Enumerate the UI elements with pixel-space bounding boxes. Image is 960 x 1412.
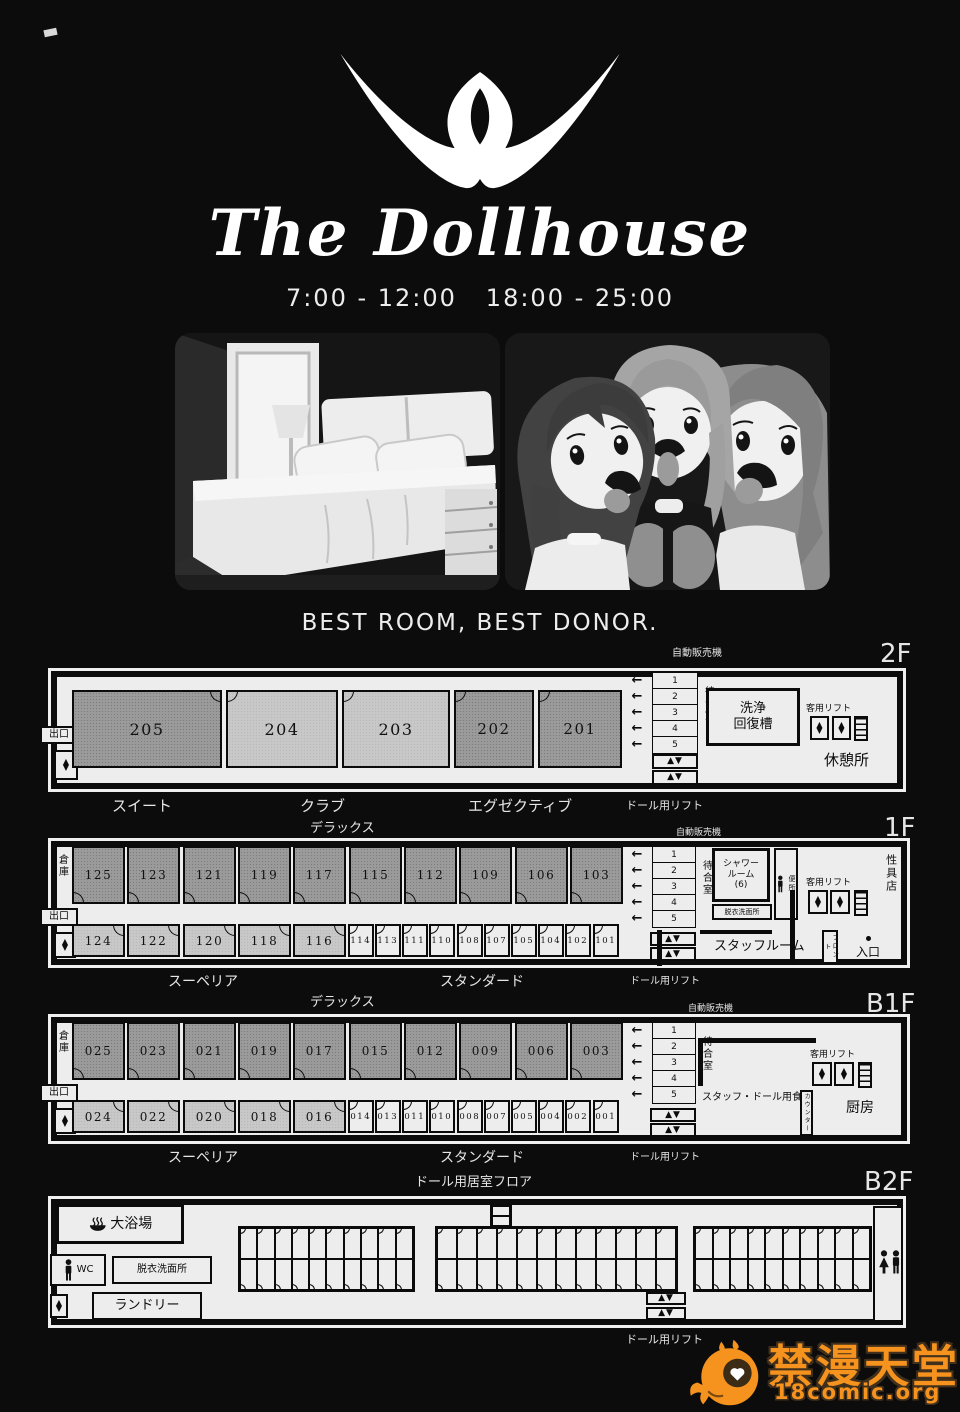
plan-label: 客用リフト	[810, 1050, 855, 1060]
door-arc-icon	[636, 1228, 642, 1234]
plan-label: スタンダード	[440, 1150, 524, 1166]
door-arc-icon	[168, 1101, 179, 1112]
plan-label: スタッフルーム	[714, 940, 805, 955]
plan-room-box: ランドリー	[92, 1292, 202, 1320]
door-arc-icon	[596, 1284, 602, 1290]
door-arc-icon	[835, 1228, 841, 1234]
room-020: 020	[183, 1100, 236, 1133]
room-024: 024	[72, 1100, 125, 1133]
room-012: 012	[404, 1022, 457, 1080]
dollhouse-logo-icon	[325, 52, 635, 197]
doll-cell	[275, 1228, 292, 1259]
room-101: 101	[593, 924, 619, 957]
doll-cell	[437, 1228, 457, 1259]
room-number: 025	[85, 1044, 112, 1058]
floor-plan-b1f: デラックス自動販売機B1F倉庫出口▲▼025023021019017015012…	[0, 988, 960, 1168]
waiting-stall: 3	[652, 1054, 696, 1072]
door-arc-icon	[800, 1228, 806, 1234]
door-arc-icon	[437, 1228, 443, 1234]
waiting-stall: 4	[652, 720, 698, 738]
door-arc-icon	[517, 1228, 523, 1234]
door-arc-icon	[594, 925, 603, 934]
door-arc-icon	[512, 925, 521, 934]
room-number: 018	[251, 1110, 278, 1124]
room-108: 108	[457, 924, 483, 957]
door-arc-icon	[239, 892, 250, 903]
doll-cell	[800, 1228, 818, 1259]
left-arrow-icon: ←	[624, 847, 650, 863]
room-number: 205	[129, 720, 164, 739]
room-203: 203	[342, 690, 450, 768]
elevator-icon: ▲▼	[650, 1123, 696, 1137]
elevator-icon: ▲▼	[50, 1294, 68, 1318]
plan-vertical-label: 倉庫	[56, 854, 68, 878]
door-arc-icon	[378, 1228, 384, 1234]
room-111: 111	[402, 924, 428, 957]
plan-room-box: シャワー ルーム (6)	[712, 848, 770, 902]
door-arc-icon	[695, 1284, 701, 1290]
plan-vertical-label: 性具店	[884, 854, 897, 893]
room-number: 013	[377, 1112, 398, 1122]
elevator-icon: ▲▼	[810, 716, 829, 740]
door-arc-icon	[128, 892, 139, 903]
doll-cell	[800, 1259, 818, 1290]
room-102: 102	[565, 924, 591, 957]
bedroom-photo	[175, 333, 500, 590]
watermark-site: 18comic.org	[774, 1380, 941, 1404]
doll-cell	[730, 1259, 748, 1290]
doll-cell	[361, 1259, 378, 1290]
doll-cell	[748, 1259, 766, 1290]
room-number: 204	[264, 720, 299, 739]
room-number: 103	[583, 868, 610, 882]
room-number: 024	[85, 1110, 112, 1124]
room-124: 124	[72, 924, 125, 957]
room-205: 205	[72, 690, 222, 768]
waiting-stall: 3	[652, 704, 698, 722]
door-arc-icon	[376, 1101, 385, 1110]
doll-cell	[378, 1228, 395, 1259]
room-number: 006	[528, 1044, 555, 1058]
room-121: 121	[183, 846, 236, 904]
door-arc-icon	[556, 1228, 562, 1234]
doll-cell	[292, 1228, 309, 1259]
waiting-stall: 2	[652, 1038, 696, 1056]
door-arc-icon	[224, 1101, 235, 1112]
doll-cell	[497, 1228, 517, 1259]
door-arc-icon	[566, 925, 575, 934]
door-arc-icon	[275, 1284, 281, 1290]
plan-label: 入口	[856, 946, 880, 960]
room-202: 202	[454, 690, 534, 768]
waiting-stall: 1	[652, 1022, 696, 1040]
floor-plan-b2f: ドール用居室フロアB2F大浴場WC脱衣洗面所ランドリー▲▼▲▼▲▼ドール用リフト	[0, 1168, 960, 1354]
waiting-stall: 1	[652, 846, 696, 864]
room-016: 016	[293, 1100, 346, 1133]
plan-room-box: カウンター	[800, 1090, 813, 1136]
door-arc-icon	[477, 1284, 483, 1290]
doll-cell	[783, 1228, 801, 1259]
left-arrow-icon: ←	[624, 1071, 650, 1087]
room-number: 106	[528, 868, 555, 882]
door-arc-icon	[224, 925, 235, 936]
door-arc-icon	[168, 925, 179, 936]
room-105: 105	[511, 924, 537, 957]
restroom-person-icon	[878, 1250, 890, 1274]
room-004: 004	[538, 1100, 564, 1133]
left-arrow-icon: ←	[624, 911, 650, 927]
column-dot	[866, 936, 871, 941]
waiting-stall: 5	[652, 1086, 696, 1104]
doll-cell	[596, 1228, 616, 1259]
room-number: 202	[477, 720, 510, 738]
room-number: 119	[251, 868, 278, 882]
plan-label: B2F	[864, 1168, 913, 1198]
left-arrow-icon: ←	[624, 879, 650, 895]
room-109: 109	[459, 846, 512, 904]
doll-cell	[835, 1228, 853, 1259]
door-arc-icon	[396, 1228, 402, 1234]
door-arc-icon	[113, 925, 124, 936]
door-arc-icon	[485, 925, 494, 934]
room-003: 003	[570, 1022, 623, 1080]
door-arc-icon	[539, 1101, 548, 1110]
room-019: 019	[238, 1022, 291, 1080]
doll-cell	[497, 1259, 517, 1290]
left-arrow-icon: ←	[624, 863, 650, 879]
floor-plan-1f: デラックス自動販売機1F倉庫出口▲▼1251231211191171151121…	[0, 812, 960, 992]
door-arc-icon	[334, 925, 345, 936]
door-arc-icon	[292, 1284, 298, 1290]
doll-cell	[257, 1259, 274, 1290]
left-arrow-icon: ←	[624, 895, 650, 911]
room-002: 002	[565, 1100, 591, 1133]
door-arc-icon	[292, 1228, 298, 1234]
doll-cell	[477, 1228, 497, 1259]
door-arc-icon	[594, 1101, 603, 1110]
door-arc-icon	[713, 1284, 719, 1290]
left-arrow-icon: ←	[624, 1023, 650, 1039]
door-arc-icon	[294, 892, 305, 903]
room-113: 113	[375, 924, 401, 957]
door-arc-icon	[512, 1101, 521, 1110]
elevator-icon: ▲▼	[834, 1062, 854, 1086]
doll-cell	[695, 1259, 713, 1290]
room-number: 120	[196, 934, 223, 948]
door-arc-icon	[576, 1284, 582, 1290]
door-arc-icon	[485, 1101, 494, 1110]
door-arc-icon	[539, 925, 548, 934]
plan-label: 2F	[880, 640, 912, 670]
left-arrow-icon: ←	[624, 737, 650, 753]
door-arc-icon	[516, 892, 527, 903]
door-arc-icon	[279, 925, 290, 936]
room-103: 103	[570, 846, 623, 904]
doll-cell-block	[435, 1226, 678, 1292]
room-number: 107	[486, 936, 507, 946]
doll-cell	[326, 1228, 343, 1259]
door-arc-icon	[695, 1228, 701, 1234]
door-arc-icon	[616, 1284, 622, 1290]
room-007: 007	[484, 1100, 510, 1133]
plan-vertical-label: 待合室	[700, 860, 712, 896]
doll-cell	[576, 1259, 596, 1290]
door-arc-icon	[343, 691, 354, 702]
doll-cell	[457, 1228, 477, 1259]
door-arc-icon	[257, 1284, 263, 1290]
door-arc-icon	[596, 1228, 602, 1234]
door-arc-icon	[566, 1101, 575, 1110]
doll-cell	[656, 1259, 676, 1290]
door-arc-icon	[396, 1284, 402, 1290]
doll-cell	[240, 1259, 257, 1290]
plan-label: 客用リフト	[806, 878, 851, 888]
wall	[700, 930, 772, 934]
plan-label: ドール用居室フロア	[415, 1176, 532, 1191]
doll-cell	[835, 1259, 853, 1290]
room-number: 014	[350, 1112, 371, 1122]
plan-room-box: WC	[50, 1254, 106, 1286]
opening-hours: 7:00 - 12:00 18:00 - 25:00	[0, 284, 960, 312]
doll-cell	[537, 1228, 557, 1259]
doll-cell	[695, 1228, 713, 1259]
door-arc-icon	[497, 1284, 503, 1290]
room-018: 018	[238, 1100, 291, 1133]
room-106: 106	[515, 846, 568, 904]
doll-cell	[396, 1259, 413, 1290]
elevator-icon: ▲▼	[646, 1292, 686, 1305]
room-number: 112	[417, 868, 444, 882]
room-number: 201	[563, 720, 596, 738]
wall	[698, 1038, 816, 1043]
plan-label: スタッフ・ドール用食堂	[702, 1092, 812, 1104]
room-006: 006	[515, 1022, 568, 1080]
doll-cell	[765, 1259, 783, 1290]
elevator-icon: ▲▼	[652, 770, 698, 785]
doll-cell-block	[693, 1226, 872, 1292]
door-arc-icon	[184, 1068, 195, 1079]
room-number: 021	[196, 1044, 223, 1058]
room-number: 125	[85, 868, 112, 882]
room-number: 108	[459, 936, 480, 946]
door-arc-icon	[350, 1068, 361, 1079]
room-110: 110	[429, 924, 455, 957]
plan-label: 客用リフト	[806, 704, 851, 714]
waiting-stall: 5	[652, 736, 698, 754]
doll-cell	[818, 1259, 836, 1290]
room-123: 123	[127, 846, 180, 904]
room-number: 023	[140, 1044, 167, 1058]
door-arc-icon	[437, 1284, 443, 1290]
door-arc-icon	[430, 1101, 439, 1110]
door-arc-icon	[239, 1068, 250, 1079]
room-011: 011	[402, 1100, 428, 1133]
plan-label: 休憩所	[824, 752, 869, 769]
doll-cell	[616, 1228, 636, 1259]
room-001: 001	[593, 1100, 619, 1133]
room-017: 017	[293, 1022, 346, 1080]
doll-cell	[556, 1228, 576, 1259]
door-arc-icon	[210, 691, 221, 702]
door-arc-icon	[730, 1228, 736, 1234]
room-number: 016	[306, 1110, 333, 1124]
doll-cell	[344, 1228, 361, 1259]
doll-cell	[275, 1259, 292, 1290]
door-arc-icon	[730, 1284, 736, 1290]
door-arc-icon	[344, 1228, 350, 1234]
doll-cell	[457, 1259, 477, 1290]
door-arc-icon	[349, 925, 358, 934]
stairs-icon	[858, 1062, 872, 1088]
door-arc-icon	[800, 1284, 806, 1290]
doll-cell	[326, 1259, 343, 1290]
room-number: 009	[472, 1044, 499, 1058]
room-number: 005	[513, 1112, 534, 1122]
waiting-stall: 1	[652, 672, 698, 690]
door-arc-icon	[748, 1284, 754, 1290]
room-104: 104	[538, 924, 564, 957]
room-119: 119	[238, 846, 291, 904]
door-arc-icon	[656, 1284, 662, 1290]
doll-cell	[378, 1259, 395, 1290]
room-number: 102	[567, 936, 588, 946]
room-number: 007	[486, 1112, 507, 1122]
plan-room-box: 洗浄 回復槽	[706, 688, 800, 746]
plan-room-box: フロント	[822, 930, 838, 964]
door-arc-icon	[275, 1228, 281, 1234]
doll-cell	[477, 1259, 497, 1290]
doll-cell	[292, 1259, 309, 1290]
waiting-stall: 2	[652, 688, 698, 706]
wall	[657, 930, 662, 966]
room-022: 022	[127, 1100, 180, 1133]
doll-cell	[556, 1259, 576, 1290]
door-arc-icon	[576, 1228, 582, 1234]
room-number: 017	[306, 1044, 333, 1058]
room-107: 107	[484, 924, 510, 957]
door-arc-icon	[765, 1228, 771, 1234]
door-arc-icon	[556, 1284, 562, 1290]
door-arc-icon	[361, 1228, 367, 1234]
doll-cell	[636, 1228, 656, 1259]
room-021: 021	[183, 1022, 236, 1080]
room-number: 116	[306, 934, 333, 948]
doll-cell	[853, 1228, 871, 1259]
room-122: 122	[127, 924, 180, 957]
room-number: 019	[251, 1044, 278, 1058]
left-arrow-icon: ←	[624, 673, 650, 689]
doll-cell	[636, 1259, 656, 1290]
room-number: 203	[378, 720, 413, 739]
door-arc-icon	[457, 1228, 463, 1234]
doll-cell	[656, 1228, 676, 1259]
door-arc-icon	[344, 1284, 350, 1290]
doll-cell	[537, 1259, 557, 1290]
door-arc-icon	[240, 1228, 246, 1234]
door-arc-icon	[748, 1228, 754, 1234]
stairs-icon	[854, 716, 868, 741]
wall	[698, 1038, 703, 1086]
door-arc-icon	[378, 1284, 384, 1290]
page-corner-mark	[43, 28, 57, 38]
manga-page: The Dollhouse 7:00 - 12:00 18:00 - 25:00	[0, 0, 960, 1412]
door-arc-icon	[376, 925, 385, 934]
elevator-icon: ▲▼	[832, 716, 851, 740]
room-201: 201	[538, 690, 622, 768]
elevator-icon: ▲▼	[812, 1062, 832, 1086]
door-arc-icon	[326, 1284, 332, 1290]
room-112: 112	[404, 846, 457, 904]
room-number: 002	[567, 1112, 588, 1122]
waiting-stall: 5	[652, 910, 696, 928]
door-arc-icon	[334, 1101, 345, 1112]
door-arc-icon	[279, 1101, 290, 1112]
waiting-stall: 4	[652, 894, 696, 912]
elevator-icon: ▲▼	[830, 890, 850, 914]
room-number: 118	[251, 934, 278, 948]
waiting-stall: 2	[652, 862, 696, 880]
door-arc-icon	[403, 1101, 412, 1110]
plan-label: デラックス	[310, 996, 375, 1011]
doll-cell	[853, 1259, 871, 1290]
door-arc-icon	[403, 925, 412, 934]
room-number: 101	[595, 936, 616, 946]
room-008: 008	[457, 1100, 483, 1133]
door-arc-icon	[349, 1101, 358, 1110]
left-arrow-icon: ←	[624, 689, 650, 705]
door-arc-icon	[713, 1228, 719, 1234]
doll-cell	[257, 1228, 274, 1259]
room-number: 109	[472, 868, 499, 882]
left-arrow-icon: ←	[624, 1087, 650, 1103]
doll-cell-block	[238, 1226, 415, 1292]
doll-cell	[576, 1228, 596, 1259]
door-arc-icon	[309, 1228, 315, 1234]
door-arc-icon	[458, 925, 467, 934]
door-arc-icon	[818, 1228, 824, 1234]
door-arc-icon	[128, 1068, 139, 1079]
room-number: 008	[459, 1112, 480, 1122]
room-010: 010	[429, 1100, 455, 1133]
room-number: 122	[140, 934, 167, 948]
room-number: 115	[362, 868, 389, 882]
door-arc-icon	[405, 1068, 416, 1079]
plan-label: 自動販売機	[688, 1004, 733, 1014]
plan-label: スーペリア	[168, 1150, 238, 1166]
room-005: 005	[511, 1100, 537, 1133]
door-arc-icon	[430, 925, 439, 934]
room-204: 204	[226, 690, 338, 768]
doll-cell	[309, 1259, 326, 1290]
room-number: 022	[140, 1110, 167, 1124]
door-arc-icon	[405, 892, 416, 903]
door-arc-icon	[616, 1228, 622, 1234]
door-arc-icon	[455, 691, 466, 702]
plan-room-box: 脱衣洗面所	[112, 1256, 212, 1284]
door-arc-icon	[765, 1284, 771, 1290]
door-arc-icon	[517, 1284, 523, 1290]
door-arc-icon	[294, 1068, 305, 1079]
elevator-icon: ▲▼	[650, 1108, 696, 1122]
door-arc-icon	[460, 892, 471, 903]
room-116: 116	[293, 924, 346, 957]
doll-cell	[730, 1228, 748, 1259]
room-114: 114	[348, 924, 374, 957]
door-arc-icon	[853, 1284, 859, 1290]
doll-cell	[492, 1206, 510, 1216]
stairs-icon	[854, 890, 868, 916]
left-arrow-icon: ←	[624, 1055, 650, 1071]
